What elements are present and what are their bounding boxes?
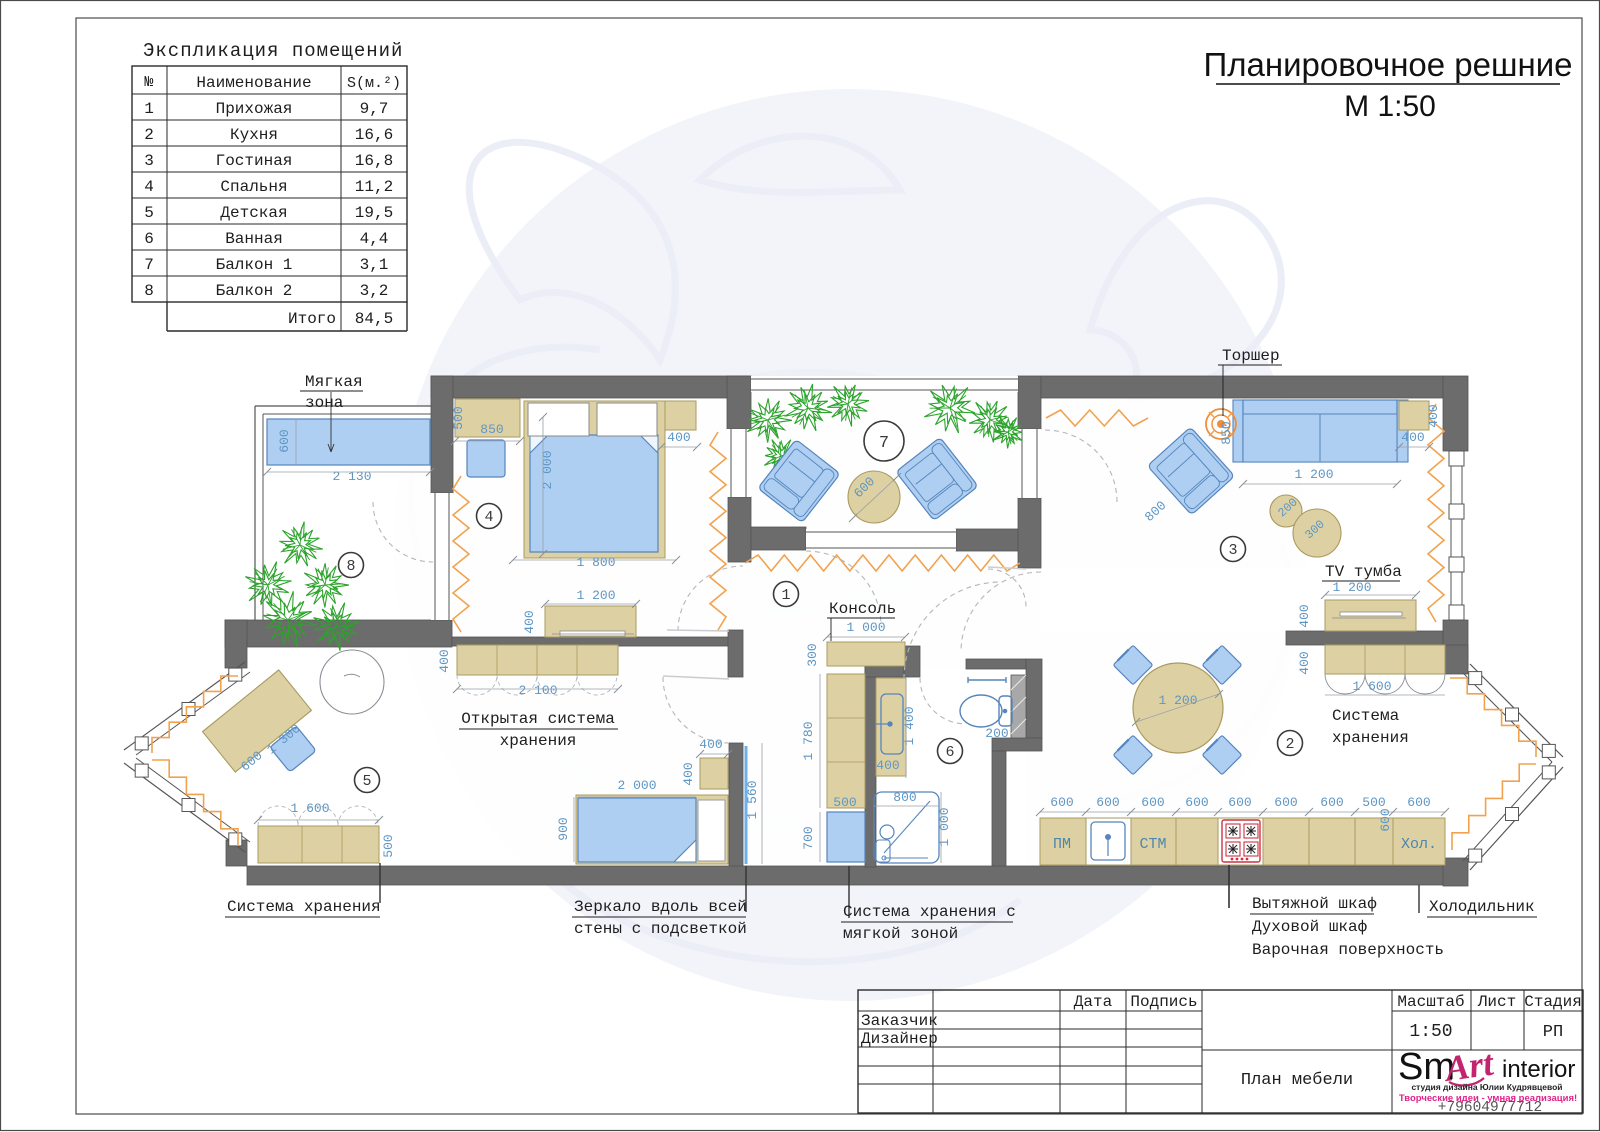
svg-text:Стадия: Стадия bbox=[1524, 993, 1582, 1011]
svg-text:interior: interior bbox=[1502, 1056, 1575, 1083]
svg-text:2: 2 bbox=[1285, 736, 1294, 753]
svg-text:Гостиная: Гостиная bbox=[216, 152, 293, 170]
svg-text:Система: Система bbox=[1332, 707, 1400, 725]
svg-text:хранения: хранения bbox=[1332, 729, 1409, 747]
svg-text:16,6: 16,6 bbox=[355, 126, 393, 144]
svg-text:1 560: 1 560 bbox=[745, 780, 760, 819]
svg-text:Зеркало вдоль всей: Зеркало вдоль всей bbox=[574, 898, 747, 916]
svg-text:Духовой шкаф: Духовой шкаф bbox=[1252, 918, 1368, 936]
svg-text:6: 6 bbox=[945, 744, 954, 761]
svg-text:Спальня: Спальня bbox=[220, 178, 287, 196]
svg-text:Вытяжной шкаф: Вытяжной шкаф bbox=[1252, 895, 1377, 913]
svg-text:зона: зона bbox=[305, 394, 344, 412]
svg-text:Дата: Дата bbox=[1074, 993, 1113, 1011]
svg-text:Наименование: Наименование bbox=[196, 74, 311, 92]
svg-text:400: 400 bbox=[1297, 651, 1312, 674]
svg-text:Торшер: Торшер bbox=[1222, 347, 1280, 365]
svg-text:600: 600 bbox=[277, 429, 292, 452]
svg-text:5: 5 bbox=[362, 773, 371, 790]
svg-text:Холодильник: Холодильник bbox=[1429, 898, 1535, 916]
svg-text:1: 1 bbox=[144, 100, 154, 118]
svg-text:600: 600 bbox=[1141, 795, 1164, 810]
svg-text:План мебели: План мебели bbox=[1241, 1071, 1353, 1090]
svg-text:9,7: 9,7 bbox=[360, 100, 389, 118]
svg-text:1 200: 1 200 bbox=[576, 588, 615, 603]
svg-text:мягкой зоной: мягкой зоной bbox=[843, 925, 958, 943]
svg-text:1: 1 bbox=[781, 587, 790, 604]
svg-text:1 600: 1 600 bbox=[1352, 679, 1391, 694]
svg-text:300: 300 bbox=[805, 643, 820, 666]
svg-text:4: 4 bbox=[144, 178, 154, 196]
svg-text:400: 400 bbox=[1426, 404, 1441, 427]
svg-text:1 800: 1 800 bbox=[576, 555, 615, 570]
svg-text:Консоль: Консоль bbox=[829, 600, 896, 618]
svg-text:2: 2 bbox=[144, 126, 154, 144]
svg-text:Мягкая: Мягкая bbox=[305, 373, 363, 391]
svg-text:600: 600 bbox=[1274, 795, 1297, 810]
svg-text:Планировочное решние: Планировочное решние bbox=[1204, 46, 1573, 83]
svg-text:стены с подсветкой: стены с подсветкой bbox=[574, 920, 747, 938]
svg-text:3: 3 bbox=[144, 152, 154, 170]
svg-text:Прихожая: Прихожая bbox=[216, 100, 293, 118]
svg-text:1 200: 1 200 bbox=[1158, 693, 1197, 708]
svg-text:TV тумба: TV тумба bbox=[1325, 563, 1402, 581]
svg-text:Дизайнер: Дизайнер bbox=[861, 1030, 938, 1048]
svg-text:ПМ: ПМ bbox=[1053, 836, 1071, 853]
svg-text:№: № bbox=[144, 74, 153, 91]
svg-text:84,5: 84,5 bbox=[355, 310, 393, 328]
svg-text:7: 7 bbox=[879, 434, 889, 453]
svg-text:1:50: 1:50 bbox=[1409, 1022, 1452, 1042]
svg-text:400: 400 bbox=[699, 737, 722, 752]
svg-text:Лист: Лист bbox=[1477, 993, 1516, 1011]
svg-text:1 400: 1 400 bbox=[902, 706, 917, 745]
svg-text:+79604977712: +79604977712 bbox=[1438, 1100, 1542, 1116]
svg-text:1 600: 1 600 bbox=[290, 801, 329, 816]
svg-text:400: 400 bbox=[681, 762, 696, 785]
svg-text:Хол.: Хол. bbox=[1401, 836, 1437, 853]
svg-text:600: 600 bbox=[1320, 795, 1343, 810]
svg-text:Заказчик: Заказчик bbox=[861, 1012, 938, 1030]
svg-text:500: 500 bbox=[833, 795, 856, 810]
svg-text:студия дизайна Юлии Кудрявцево: студия дизайна Юлии Кудрявцевой bbox=[1411, 1082, 1562, 1092]
svg-text:600: 600 bbox=[1050, 795, 1073, 810]
svg-text:800: 800 bbox=[893, 790, 916, 805]
svg-text:19,5: 19,5 bbox=[355, 204, 393, 222]
svg-text:1 000: 1 000 bbox=[937, 807, 952, 846]
svg-text:Кухня: Кухня bbox=[230, 126, 278, 144]
svg-text:600: 600 bbox=[1407, 795, 1430, 810]
svg-text:8: 8 bbox=[144, 282, 154, 300]
svg-text:Подпись: Подпись bbox=[1130, 993, 1197, 1011]
svg-text:2 100: 2 100 bbox=[518, 683, 557, 698]
svg-text:16,8: 16,8 bbox=[355, 152, 393, 170]
svg-text:S(м.²): S(м.²) bbox=[347, 75, 401, 92]
svg-text:Балкон 1: Балкон 1 bbox=[216, 256, 293, 274]
svg-text:1 200: 1 200 bbox=[1332, 580, 1371, 595]
svg-text:600: 600 bbox=[1378, 808, 1393, 831]
svg-text:2 000: 2 000 bbox=[617, 778, 656, 793]
svg-text:Балкон 2: Балкон 2 bbox=[216, 282, 293, 300]
svg-text:400: 400 bbox=[876, 758, 899, 773]
svg-text:850: 850 bbox=[480, 422, 503, 437]
svg-text:600: 600 bbox=[1185, 795, 1208, 810]
svg-text:Открытая система: Открытая система bbox=[461, 710, 615, 728]
svg-text:1 000: 1 000 bbox=[846, 620, 885, 635]
svg-text:400: 400 bbox=[1401, 430, 1424, 445]
svg-text:2 000: 2 000 bbox=[540, 450, 555, 489]
svg-text:5: 5 bbox=[144, 204, 154, 222]
svg-text:6: 6 bbox=[144, 230, 154, 248]
svg-text:3,1: 3,1 bbox=[360, 256, 389, 274]
svg-text:Система хранения: Система хранения bbox=[227, 898, 381, 916]
svg-text:400: 400 bbox=[522, 610, 537, 633]
svg-text:600: 600 bbox=[1228, 795, 1251, 810]
svg-text:1 200: 1 200 bbox=[1294, 467, 1333, 482]
svg-text:500: 500 bbox=[451, 406, 466, 429]
svg-text:850: 850 bbox=[1219, 421, 1234, 444]
svg-text:500: 500 bbox=[381, 834, 396, 857]
svg-text:11,2: 11,2 bbox=[355, 178, 393, 196]
svg-text:Масштаб: Масштаб bbox=[1397, 993, 1464, 1011]
svg-text:Экспликация помещений: Экспликация помещений bbox=[143, 40, 403, 62]
svg-text:хранения: хранения bbox=[500, 732, 577, 750]
svg-text:Детская: Детская bbox=[220, 204, 287, 222]
svg-text:1 780: 1 780 bbox=[801, 721, 816, 760]
svg-text:4,4: 4,4 bbox=[360, 230, 389, 248]
svg-text:М 1:50: М 1:50 bbox=[1344, 90, 1436, 123]
svg-text:500: 500 bbox=[1362, 795, 1385, 810]
svg-text:8: 8 bbox=[346, 558, 355, 575]
svg-text:РП: РП bbox=[1543, 1023, 1563, 1042]
svg-text:700: 700 bbox=[801, 826, 816, 849]
svg-text:600: 600 bbox=[1096, 795, 1119, 810]
svg-text:7: 7 bbox=[144, 256, 154, 274]
svg-text:400: 400 bbox=[667, 430, 690, 445]
svg-text:Ванная: Ванная bbox=[225, 230, 283, 248]
svg-text:Варочная поверхность: Варочная поверхность bbox=[1252, 941, 1444, 959]
svg-text:200: 200 bbox=[985, 726, 1008, 741]
svg-text:4: 4 bbox=[484, 509, 493, 526]
svg-text:2 130: 2 130 bbox=[332, 469, 371, 484]
svg-text:СТМ: СТМ bbox=[1139, 836, 1166, 853]
svg-text:Итого: Итого bbox=[288, 310, 336, 328]
svg-text:900: 900 bbox=[556, 817, 571, 840]
svg-text:Система хранения с: Система хранения с bbox=[843, 903, 1016, 921]
svg-text:3,2: 3,2 bbox=[360, 282, 389, 300]
svg-text:400: 400 bbox=[437, 649, 452, 672]
svg-text:400: 400 bbox=[1297, 604, 1312, 627]
svg-text:3: 3 bbox=[1228, 542, 1237, 559]
